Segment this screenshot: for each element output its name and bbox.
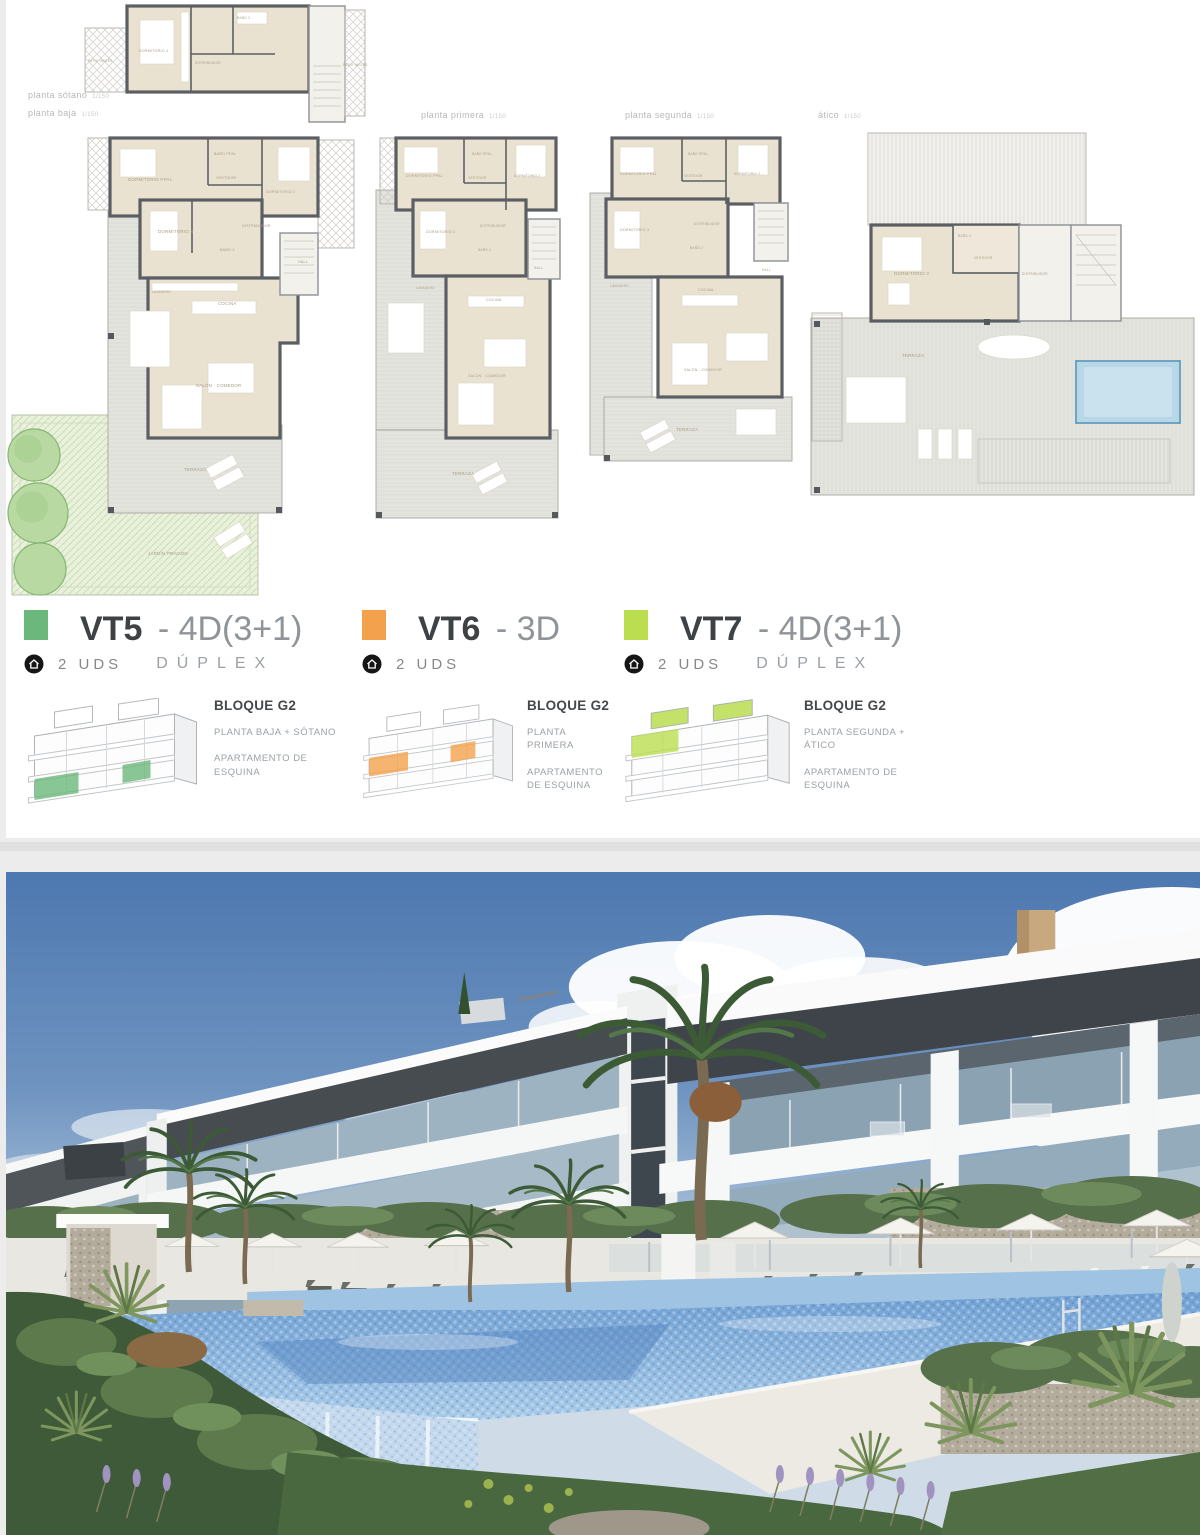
highlight-unit bbox=[651, 707, 688, 728]
room-label: BAÑO 2 bbox=[478, 247, 491, 252]
floor-desc: PLANTA BAJA + SÓTANO bbox=[214, 726, 342, 739]
room-label: DISTRIBUIDOR bbox=[1022, 272, 1048, 276]
legend-item-vt5: VT5 - 4D(3+1) 2 UDS DÚPLEX bbox=[24, 610, 359, 816]
legend-subline: 2 UDS DÚPLEX bbox=[24, 654, 359, 674]
room-label: DISTRIBUIDOR bbox=[694, 222, 720, 226]
legend-title: VT6 - 3D bbox=[418, 612, 560, 646]
room-label: HALL bbox=[762, 268, 771, 272]
render-scene bbox=[6, 872, 1200, 1535]
room-label: VESTIDOR bbox=[468, 176, 487, 180]
building-axon-sketch bbox=[624, 698, 794, 816]
house-icon bbox=[624, 654, 644, 674]
floorplans-drawing: PATIO INGLÉS DORMITORIO 4 BAÑO 3 DISTRIB… bbox=[6, 0, 1200, 600]
room-label: TERRAZA bbox=[676, 427, 698, 432]
building-axon-sketch bbox=[24, 698, 204, 816]
room-label: DORMITORIO PPAL bbox=[128, 177, 173, 182]
room-label: JARDÍN PRIVADO bbox=[148, 551, 188, 556]
palm-dry-fronds bbox=[689, 1082, 741, 1122]
room-label: DORMITORIO 3 bbox=[894, 271, 929, 276]
room-label: COCINA bbox=[218, 301, 237, 306]
floorplans-sheet: planta sótano1/150 planta baja1/150 plan… bbox=[6, 0, 1200, 838]
room-label: SALÓN - COMEDOR bbox=[684, 367, 722, 372]
legend-subline: 2 UDS DÚPLEX bbox=[624, 654, 959, 674]
block-label: BLOQUE G2 bbox=[527, 698, 612, 713]
units-count: 2 UDS bbox=[396, 656, 460, 673]
plan-primera: DORMITORIO PPAL BAÑO PPAL VESTIDOR DORMI… bbox=[376, 138, 560, 518]
legend-item-vt6: VT6 - 3D 2 UDS bbox=[362, 610, 612, 816]
room-label: HALL bbox=[298, 260, 308, 264]
plan-segunda: DORMITORIO PPAL BAÑO PPAL VESTIDOR DORMI… bbox=[590, 138, 792, 461]
legend-head: VT6 - 3D bbox=[362, 610, 612, 646]
unit-type: - 4D(3+1) bbox=[758, 610, 903, 648]
room-label: TERRAZA bbox=[902, 353, 924, 358]
room-label: DORMITORIO 4 bbox=[139, 49, 168, 53]
legend-text: BLOQUE G2 PLANTA BAJA + SÓTANO APARTAMEN… bbox=[214, 698, 342, 816]
room-label: VESTIDOR bbox=[974, 256, 993, 260]
room-label: BAÑO 3 bbox=[958, 233, 971, 238]
legend-head: VT5 - 4D(3+1) bbox=[24, 610, 359, 646]
room-label: PATIO INGLÉS bbox=[343, 62, 368, 67]
room-label: VESTIDOR bbox=[684, 174, 703, 178]
room-label: DORMITORIO 3 bbox=[158, 229, 193, 234]
color-swatch-vt6 bbox=[362, 610, 386, 640]
floor-desc: PLANTA SEGUNDA + ÁTICO bbox=[804, 726, 932, 753]
room-label: BAÑO 3 bbox=[237, 15, 250, 20]
room-label: DORMITORIO 2 bbox=[734, 172, 760, 176]
position-desc: APARTAMENTO DE ESQUINA bbox=[214, 752, 342, 779]
room-label: DISTRIBUIDOR bbox=[195, 61, 221, 65]
room-label: COCINA bbox=[698, 288, 714, 292]
unit-code: VT5 bbox=[80, 610, 142, 648]
legend-body: BLOQUE G2 PLANTA PRIMERA APARTAMENTO DE … bbox=[362, 698, 612, 816]
color-swatch-vt7 bbox=[624, 610, 648, 640]
position-desc: APARTAMENTO DE ESQUINA bbox=[527, 766, 612, 793]
position-desc: APARTAMENTO DE ESQUINA bbox=[804, 766, 932, 793]
plan-sotano: PATIO INGLÉS DORMITORIO 4 BAÑO 3 DISTRIB… bbox=[85, 6, 368, 122]
plan-baja: DORMITORIO PPAL BAÑO PPAL VESTIDOR DORMI… bbox=[8, 138, 354, 595]
room-label: BAÑO 2 bbox=[220, 247, 235, 252]
room-label: DORMITORIO PPAL bbox=[620, 172, 657, 176]
room-label: DISTRIBUIDOR bbox=[242, 224, 271, 228]
room-label: BAÑO PPAL bbox=[472, 151, 492, 156]
room-label: TERRAZA bbox=[184, 467, 206, 472]
block-label: BLOQUE G2 bbox=[214, 698, 342, 713]
brochure-page: planta sótano1/150 planta baja1/150 plan… bbox=[0, 0, 1200, 1535]
building-axon-sketch bbox=[362, 698, 517, 816]
unit-type: - 3D bbox=[496, 610, 560, 648]
room-label: DORMITORIO 3 bbox=[620, 228, 649, 232]
pampas-plume bbox=[1162, 1262, 1182, 1342]
room-label: HALL bbox=[534, 266, 543, 270]
floor-desc: PLANTA PRIMERA bbox=[527, 726, 612, 753]
legend-item-vt7: VT7 - 4D(3+1) 2 UDS DÚPLEX bbox=[624, 610, 959, 816]
legend-text: BLOQUE G2 PLANTA SEGUNDA + ÁTICO APARTAM… bbox=[804, 698, 932, 816]
color-swatch-vt5 bbox=[24, 610, 48, 640]
exterior-render-photo bbox=[6, 872, 1200, 1535]
room-label: DISTRIBUIDOR bbox=[480, 224, 506, 228]
room-label: LAVADERO bbox=[610, 284, 629, 288]
room-label: DORMITORIO 2 bbox=[266, 190, 295, 194]
unit-code: VT7 bbox=[680, 610, 742, 648]
house-icon bbox=[24, 654, 44, 674]
duplex-label: DÚPLEX bbox=[156, 655, 274, 673]
legend-head: VT7 - 4D(3+1) bbox=[624, 610, 959, 646]
unit-code: VT6 bbox=[418, 610, 480, 648]
units-count: 2 UDS bbox=[58, 656, 122, 673]
room-label: DORMITORIO 2 bbox=[514, 174, 540, 178]
legend-title: VT7 - 4D(3+1) bbox=[680, 612, 902, 646]
unit-type: - 4D(3+1) bbox=[158, 610, 303, 648]
room-label: DORMITORIO PPAL bbox=[406, 174, 443, 178]
room-label: LAVADERO bbox=[416, 286, 435, 290]
room-label: TERRAZA bbox=[452, 471, 474, 476]
legend-text: BLOQUE G2 PLANTA PRIMERA APARTAMENTO DE … bbox=[527, 698, 612, 816]
room-label: LAVADERO bbox=[152, 290, 171, 294]
duplex-label: DÚPLEX bbox=[756, 655, 874, 673]
units-count: 2 UDS bbox=[658, 656, 722, 673]
legend-body: BLOQUE G2 PLANTA BAJA + SÓTANO APARTAMEN… bbox=[24, 698, 359, 816]
room-label: COCINA bbox=[486, 298, 502, 302]
room-label: SALÓN - COMEDOR bbox=[196, 383, 241, 388]
section-divider bbox=[0, 842, 1200, 851]
block-label: BLOQUE G2 bbox=[804, 698, 932, 713]
room-label: PATIO INGLÉS bbox=[88, 58, 113, 63]
legend-subline: 2 UDS bbox=[362, 654, 612, 674]
room-label: DORMITORIO 3 bbox=[426, 230, 455, 234]
plan-atico: DORMITORIO 3 BAÑO 3 VESTIDOR DISTRIBUIDO… bbox=[811, 133, 1194, 495]
highlight-unit bbox=[713, 700, 752, 721]
room-label: SALÓN - COMEDOR bbox=[468, 373, 506, 378]
legend-body: BLOQUE G2 PLANTA SEGUNDA + ÁTICO APARTAM… bbox=[624, 698, 959, 816]
dry-shrub bbox=[127, 1332, 207, 1368]
room-label: VESTIDOR bbox=[216, 176, 237, 180]
room-label: BAÑO PPAL bbox=[214, 151, 236, 156]
house-icon bbox=[362, 654, 382, 674]
room-label: BAÑO 2 bbox=[690, 245, 703, 250]
room-label: BAÑO PPAL bbox=[688, 151, 708, 156]
legend-title: VT5 - 4D(3+1) bbox=[80, 612, 302, 646]
stone-step bbox=[243, 1300, 303, 1316]
